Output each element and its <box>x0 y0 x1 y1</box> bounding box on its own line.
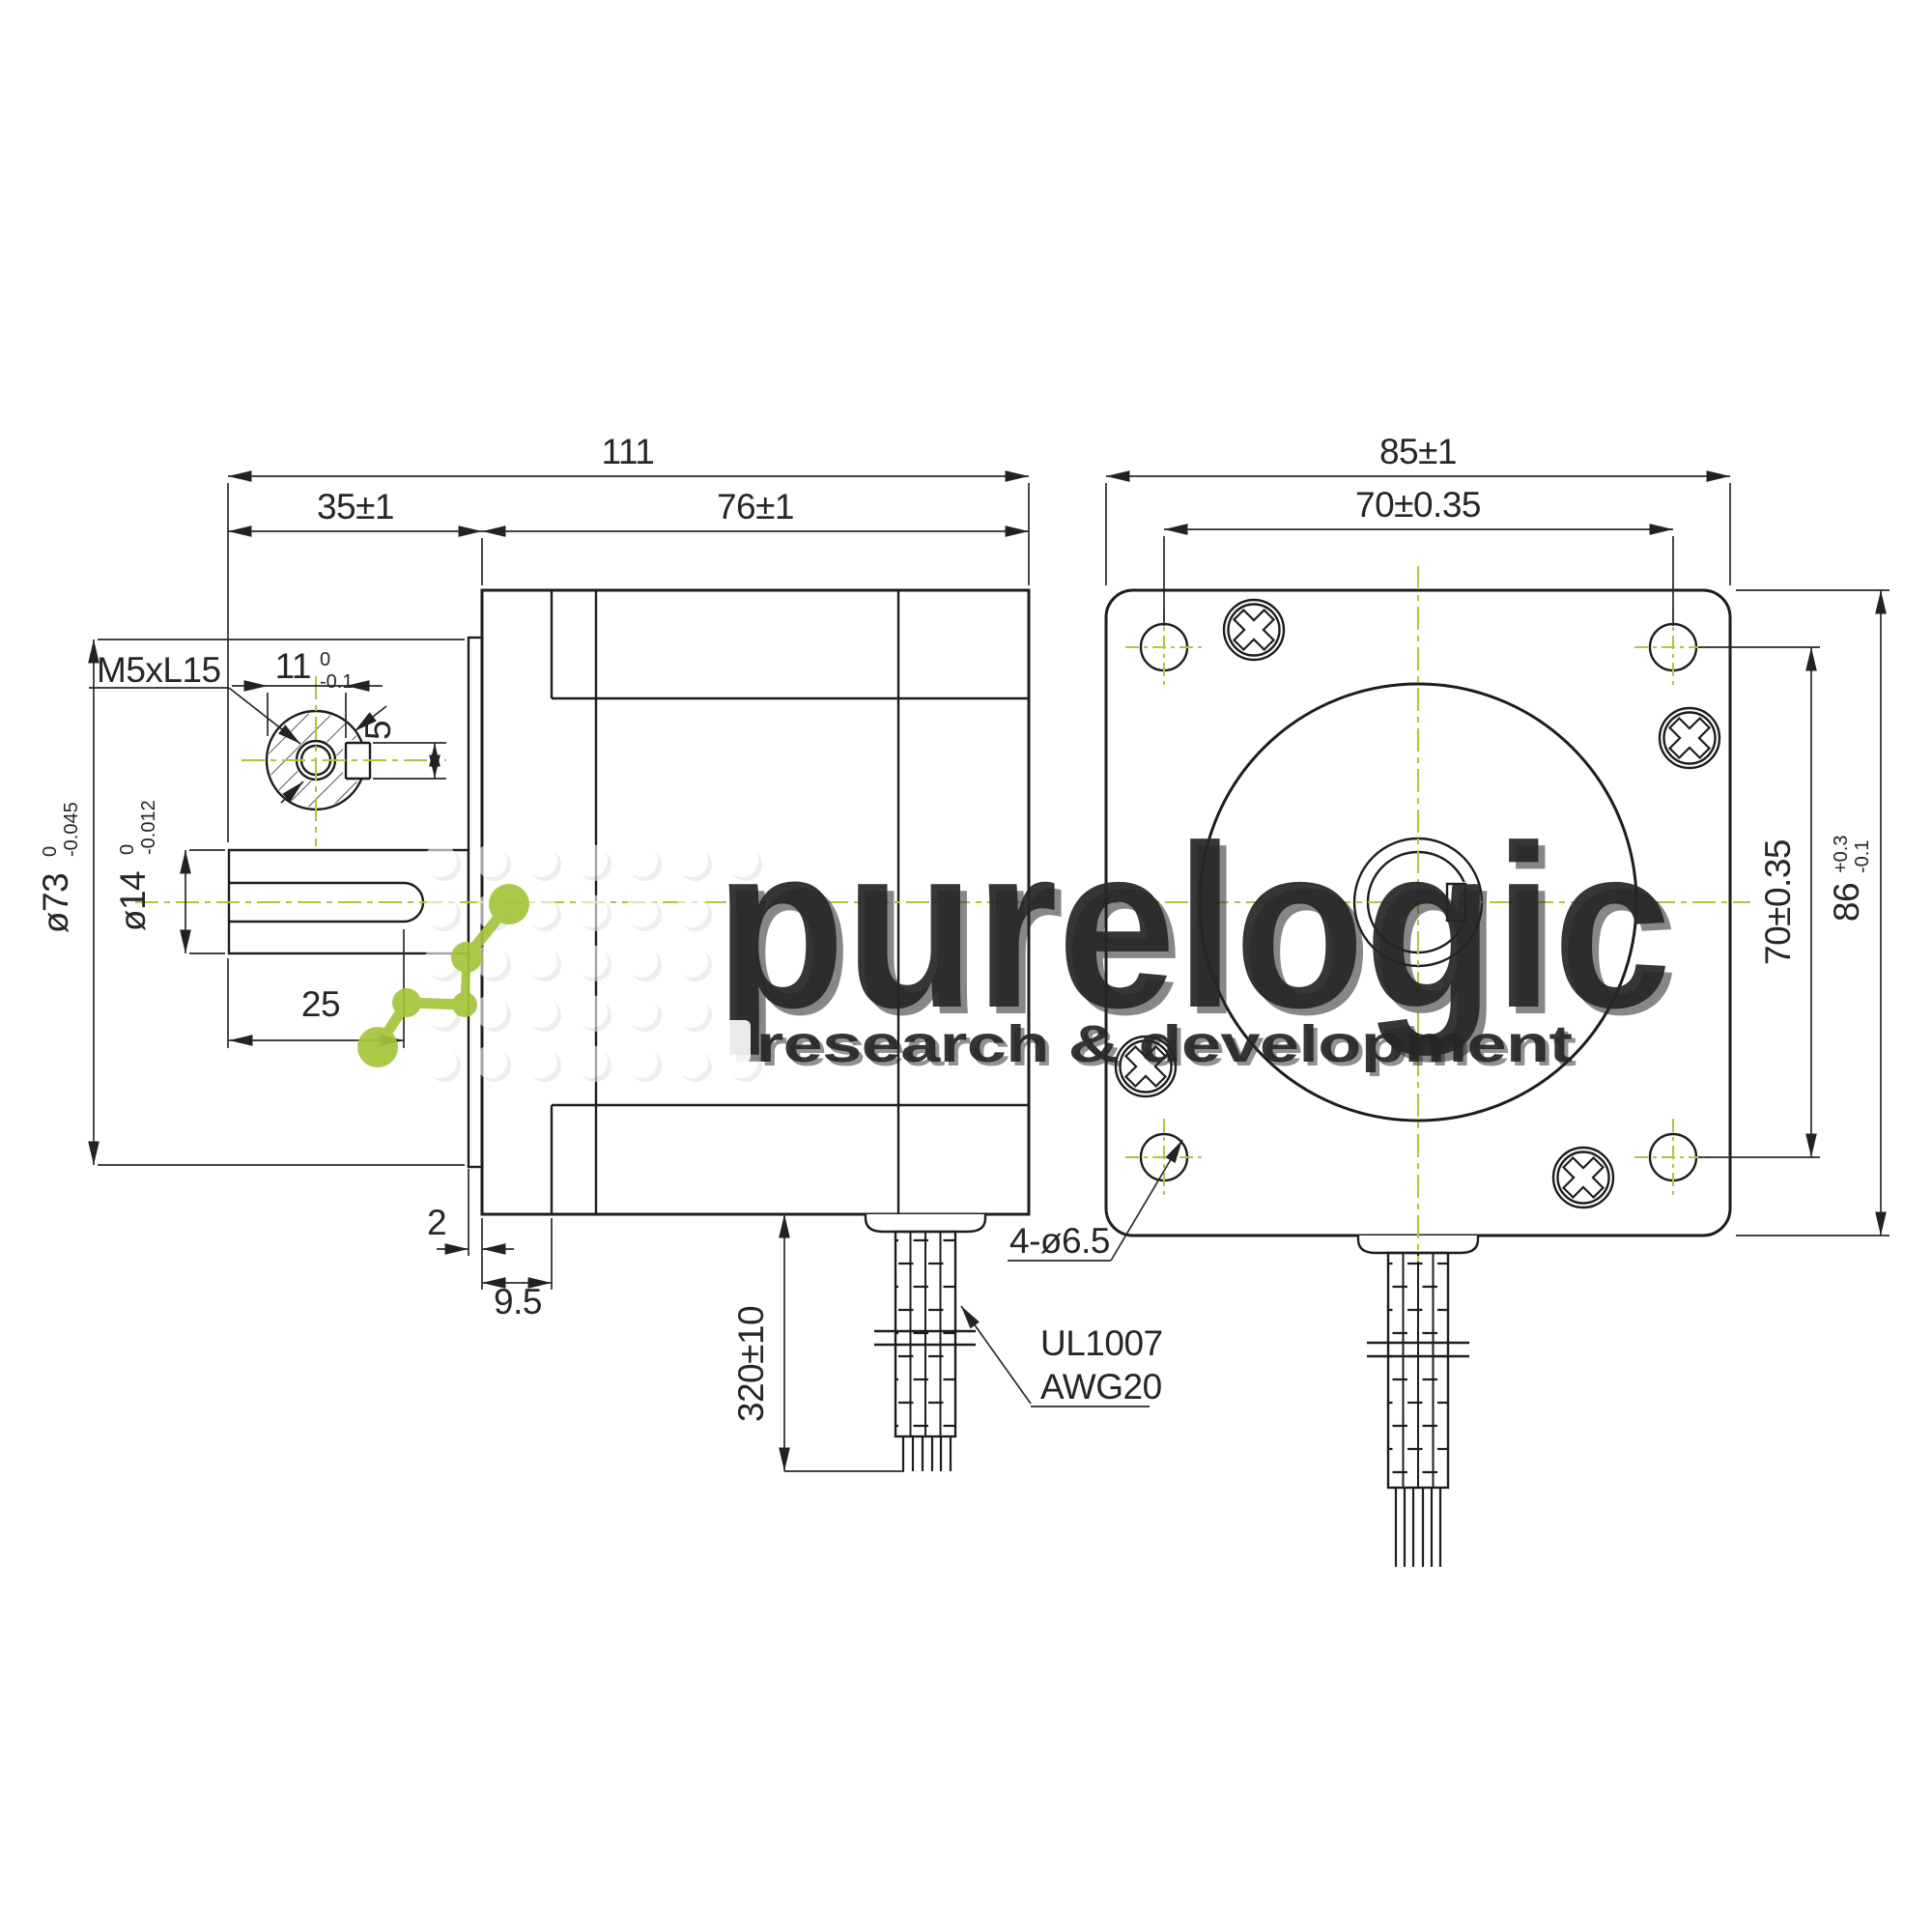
dim-11: 11 <box>275 646 311 686</box>
molecule-node <box>451 942 482 973</box>
dim-86-tol-top: +0.3 <box>1831 836 1852 873</box>
dim-86: 86 <box>1827 883 1866 922</box>
cable-leader <box>961 1306 1031 1404</box>
cable-label-1: UL1007 <box>1040 1323 1163 1363</box>
dim-25: 25 <box>301 984 340 1024</box>
molecule-node <box>357 1027 398 1067</box>
dim-d73-tol-top: 0 <box>40 846 61 857</box>
molecule-node <box>489 884 529 924</box>
dim-85: 85±1 <box>1379 432 1457 471</box>
dim-d14-tol-bot: -0.012 <box>138 800 159 855</box>
dim-86-tol-bot: -0.1 <box>1852 840 1873 873</box>
dim-35: 35±1 <box>317 487 394 526</box>
molecule-node <box>452 992 477 1017</box>
dim-5: 5 <box>358 721 398 740</box>
cable-front <box>1358 1236 1478 1567</box>
dim-d14: ø14 <box>113 871 153 931</box>
thread-label: M5xL15 <box>97 650 221 690</box>
drawing-canvas: 111 35±1 76±1 11 0 -0.1 M5xL15 25 2 9.5 … <box>0 0 1932 1932</box>
cable-side <box>866 1214 985 1471</box>
dim-76: 76±1 <box>717 487 794 526</box>
cable-label-2: AWG20 <box>1040 1367 1162 1406</box>
dim-2: 2 <box>427 1203 446 1242</box>
dim-9-5: 9.5 <box>494 1282 542 1321</box>
watermark-subtitle: research & development research & develo… <box>708 1015 1577 1077</box>
dim-d73: ø73 <box>36 873 75 933</box>
dim-d14-tol-top: 0 <box>117 844 138 855</box>
drawing-page: 111 35±1 76±1 11 0 -0.1 M5xL15 25 2 9.5 … <box>0 0 1932 1932</box>
dim-70-right: 70±0.35 <box>1758 839 1798 965</box>
dim-320: 320±10 <box>731 1306 771 1422</box>
dim-d73-tol-bot: -0.045 <box>61 802 82 857</box>
dim-111: 111 <box>602 432 655 471</box>
dim-11-tol-bot: -0.1 <box>320 671 353 693</box>
svg-text:research & development: research & development <box>756 1015 1574 1073</box>
dim-11-tol-top: 0 <box>320 649 330 670</box>
dim-70-top: 70±0.35 <box>1355 485 1481 525</box>
molecule-node <box>392 988 421 1017</box>
holes-label: 4-ø6.5 <box>1009 1221 1110 1261</box>
